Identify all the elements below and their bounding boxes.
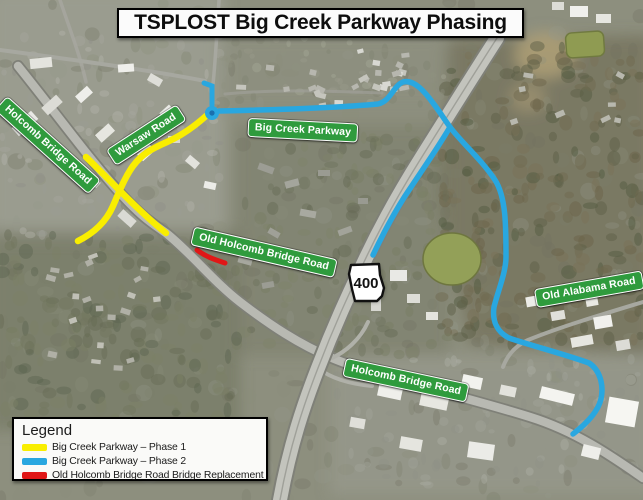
legend-item-phase-1: Big Creek Parkway – Phase 1 xyxy=(22,440,258,454)
legend-swatch-phase-1 xyxy=(22,444,47,451)
roundabout-center-dot xyxy=(209,110,214,115)
legend-label-phase-2: Big Creek Parkway – Phase 2 xyxy=(52,456,186,467)
legend-item-phase-2: Big Creek Parkway – Phase 2 xyxy=(22,454,258,468)
pond xyxy=(423,233,481,285)
ga400-shield-number: 400 xyxy=(353,275,378,292)
legend-item-bridge-replacement: Old Holcomb Bridge Road Bridge Replaceme… xyxy=(22,468,258,482)
legend-heading: Legend xyxy=(22,422,258,439)
map-figure: 400 Holcomb Bridge Road Warsaw Road Big … xyxy=(0,0,643,500)
ga400-shield-icon: 400 xyxy=(349,264,384,301)
legend-label-phase-1: Big Creek Parkway – Phase 1 xyxy=(52,442,186,453)
retention-pond xyxy=(565,31,605,59)
legend: Legend Big Creek Parkway – Phase 1 Big C… xyxy=(12,417,268,481)
legend-swatch-bridge-replacement xyxy=(22,472,47,479)
legend-swatch-phase-2 xyxy=(22,458,47,465)
legend-label-bridge-replacement: Old Holcomb Bridge Road Bridge Replaceme… xyxy=(52,470,263,481)
map-title: TSPLOST Big Creek Parkway Phasing xyxy=(117,8,524,38)
